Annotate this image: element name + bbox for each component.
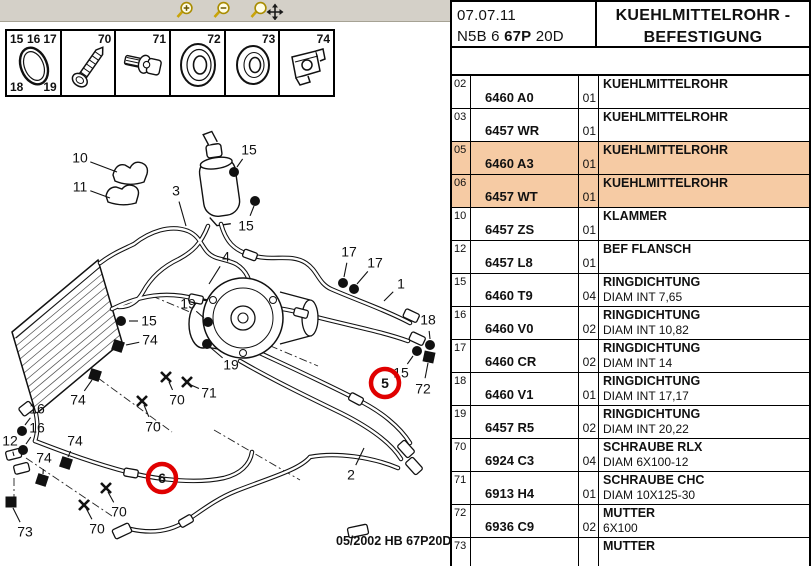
svg-text:3: 3: [172, 183, 180, 199]
svg-text:15: 15: [238, 218, 254, 234]
row-description-cell: KUEHLMITTELROHR: [599, 142, 809, 174]
screw-cross-marker: [137, 396, 147, 406]
row-qty: 01: [579, 76, 599, 108]
callout-3: 3: [172, 183, 186, 227]
screw-cross-marker: [79, 500, 89, 510]
table-row[interactable]: 17 6460 CR 02 RINGDICHTUNG DIAM INT 14: [452, 340, 809, 373]
row-part-number: 6457 R5: [471, 406, 579, 438]
row-description: RINGDICHTUNG: [603, 341, 809, 356]
callout-70: 70: [108, 492, 127, 520]
svg-text:15: 15: [141, 313, 157, 329]
row-note: DIAM INT 14: [603, 356, 809, 371]
callout-74: 74: [126, 332, 158, 348]
row-description-cell: RINGDICHTUNG DIAM INT 10,82: [599, 307, 809, 339]
page-title-line1: KUEHLMITTELROHR -: [597, 5, 809, 27]
callout-10: 10: [72, 150, 117, 173]
callout-74: 74: [70, 380, 92, 408]
row-description-cell: KUEHLMITTELROHR: [599, 109, 809, 141]
svg-text:12: 12: [2, 433, 18, 449]
row-description: BEF FLANSCH: [603, 242, 809, 257]
row-ref: 19: [452, 406, 471, 438]
svg-text:15: 15: [241, 142, 257, 158]
table-row[interactable]: 16 6460 V0 02 RINGDICHTUNG DIAM INT 10,8…: [452, 307, 809, 340]
table-spacer: [452, 48, 809, 76]
seal-dot-marker: [349, 284, 359, 294]
header-code: N5B 6 67P 20D: [457, 26, 593, 47]
svg-text:70: 70: [89, 521, 105, 537]
callout-70: 70: [144, 405, 161, 435]
row-description: RINGDICHTUNG: [603, 407, 809, 422]
row-description: RINGDICHTUNG: [603, 308, 809, 323]
svg-text:74: 74: [70, 392, 86, 408]
seal-dot-marker: [425, 340, 435, 350]
callout-15: 15: [129, 313, 157, 329]
row-description: MUTTER: [603, 539, 809, 554]
row-qty: 02: [579, 406, 599, 438]
svg-text:2: 2: [347, 467, 355, 483]
callout-1: 1: [384, 276, 405, 302]
table-row[interactable]: 19 6457 R5 02 RINGDICHTUNG DIAM INT 20,2…: [452, 406, 809, 439]
callout-2: 2: [347, 448, 364, 483]
svg-text:71: 71: [201, 385, 217, 401]
svg-text:17: 17: [367, 255, 383, 271]
svg-text:16: 16: [29, 420, 45, 436]
row-ref: 06: [452, 175, 471, 207]
row-description: RINGDICHTUNG: [603, 275, 809, 290]
row-description-cell: KUEHLMITTELROHR: [599, 76, 809, 108]
row-description-cell: RINGDICHTUNG DIAM INT 14: [599, 340, 809, 372]
screw-cross-marker: [101, 483, 111, 493]
clip-square-marker: [6, 497, 17, 508]
row-part-number: 6457 WR: [471, 109, 579, 141]
table-row[interactable]: 70 6924 C3 04 SCHRAUBE RLX DIAM 6X100-12: [452, 439, 809, 472]
highlight-circle-5: 5: [371, 369, 399, 397]
svg-text:73: 73: [17, 524, 33, 540]
row-part-number: 6924 C3: [471, 439, 579, 471]
row-qty: 01: [579, 175, 599, 207]
row-qty: 02: [579, 307, 599, 339]
row-part-number: 6460 A0: [471, 76, 579, 108]
row-description-cell: KLAMMER: [599, 208, 809, 240]
svg-text:10: 10: [72, 150, 88, 166]
seal-dot-marker: [18, 445, 28, 455]
screw-cross-marker: [182, 377, 192, 387]
row-qty: 01: [579, 109, 599, 141]
row-note: DIAM INT 10,82: [603, 323, 809, 338]
row-part-number: 6936 C9: [471, 505, 579, 537]
seal-dot-marker: [116, 316, 126, 326]
callout-18: 18: [420, 312, 436, 340]
diagram-footer: 05/2002 HB 67P20D: [336, 534, 450, 548]
row-qty: 01: [579, 208, 599, 240]
table-row[interactable]: 06 6457 WT 01 KUEHLMITTELROHR: [452, 175, 809, 208]
row-ref: 17: [452, 340, 471, 372]
row-note: 6X100: [603, 521, 809, 536]
header-reference-cell: 07.07.11 N5B 6 67P 20D: [452, 2, 597, 46]
table-row[interactable]: 18 6460 V1 01 RINGDICHTUNG DIAM INT 17,1…: [452, 373, 809, 406]
row-part-number: [471, 538, 579, 566]
row-description-cell: SCHRAUBE RLX DIAM 6X100-12: [599, 439, 809, 471]
svg-text:16: 16: [29, 401, 45, 417]
row-note: DIAM INT 20,22: [603, 422, 809, 437]
row-ref: 72: [452, 505, 471, 537]
row-note: DIAM 6X100-12: [603, 455, 809, 470]
row-description: MUTTER: [603, 506, 809, 521]
row-description: KUEHLMITTELROHR: [603, 110, 809, 125]
svg-text:70: 70: [145, 419, 161, 435]
row-qty: 04: [579, 274, 599, 306]
callout-73: 73: [13, 508, 33, 540]
row-description: KUEHLMITTELROHR: [603, 176, 809, 191]
row-ref: 02: [452, 76, 471, 108]
row-ref: 05: [452, 142, 471, 174]
row-ref: 16: [452, 307, 471, 339]
row-ref: 73: [452, 538, 471, 566]
row-description-cell: RINGDICHTUNG DIAM INT 17,17: [599, 373, 809, 405]
row-ref: 12: [452, 241, 471, 273]
row-ref: 03: [452, 109, 471, 141]
seal-dot-marker: [250, 196, 260, 206]
table-row[interactable]: 03 6457 WR 01 KUEHLMITTELROHR: [452, 109, 809, 142]
seal-dot-marker: [203, 317, 213, 327]
row-note: DIAM INT 7,65: [603, 290, 809, 305]
row-description: SCHRAUBE RLX: [603, 440, 809, 455]
seal-dot-marker: [229, 167, 239, 177]
screw-cross-marker: [161, 372, 171, 382]
row-qty: [579, 538, 599, 566]
callout-70: 70: [86, 508, 105, 537]
svg-text:19: 19: [223, 357, 239, 373]
row-part-number: 6457 WT: [471, 175, 579, 207]
svg-text:18: 18: [420, 312, 436, 328]
row-description-cell: SCHRAUBE CHC DIAM 10X125-30: [599, 472, 809, 504]
parts-table-rows: 02 6460 A0 01 KUEHLMITTELROHR 03 6457 WR…: [452, 76, 809, 566]
svg-text:70: 70: [111, 504, 127, 520]
clip-square-marker: [35, 473, 49, 487]
svg-text:74: 74: [67, 433, 83, 449]
svg-text:70: 70: [169, 392, 185, 408]
seal-dot-marker: [17, 426, 27, 436]
seal-dot-marker: [202, 339, 212, 349]
row-qty: 02: [579, 340, 599, 372]
row-qty: 01: [579, 241, 599, 273]
table-row[interactable]: 73 MUTTER: [452, 538, 809, 566]
svg-text:11: 11: [73, 179, 88, 195]
row-qty: 01: [579, 142, 599, 174]
row-part-number: 6913 H4: [471, 472, 579, 504]
callout-71: 71: [191, 385, 217, 401]
table-header: 07.07.11 N5B 6 67P 20D KUEHLMITTELROHR -…: [452, 2, 809, 48]
svg-text:72: 72: [415, 381, 431, 397]
page-title-line2: BEFESTIGUNG: [597, 27, 809, 49]
row-qty: 01: [579, 472, 599, 504]
row-ref: 18: [452, 373, 471, 405]
row-description-cell: MUTTER: [599, 538, 809, 566]
row-ref: 10: [452, 208, 471, 240]
svg-text:6: 6: [158, 470, 166, 486]
table-row[interactable]: 05 6460 A3 01 KUEHLMITTELROHR: [452, 142, 809, 175]
row-description-cell: RINGDICHTUNG DIAM INT 7,65: [599, 274, 809, 306]
row-description-cell: MUTTER 6X100: [599, 505, 809, 537]
callout-72: 72: [415, 363, 431, 397]
callout-17: 17: [341, 244, 357, 278]
svg-text:4: 4: [222, 249, 230, 265]
clip-square-marker: [422, 350, 435, 363]
row-qty: 02: [579, 505, 599, 537]
row-ref: 71: [452, 472, 471, 504]
clip-square-marker: [59, 456, 73, 470]
svg-text:19: 19: [180, 296, 196, 312]
row-part-number: 6460 CR: [471, 340, 579, 372]
callout-17: 17: [357, 255, 383, 285]
row-description-cell: RINGDICHTUNG DIAM INT 20,22: [599, 406, 809, 438]
seal-dot-marker: [412, 346, 422, 356]
callout-74: 74: [67, 433, 83, 458]
table-row[interactable]: 10 6457 ZS 01 KLAMMER: [452, 208, 809, 241]
row-ref: 70: [452, 439, 471, 471]
svg-text:5: 5: [381, 375, 389, 391]
row-ref: 15: [452, 274, 471, 306]
svg-text:17: 17: [341, 244, 357, 260]
seal-dot-marker: [338, 278, 348, 288]
row-qty: 01: [579, 373, 599, 405]
row-part-number: 6460 A3: [471, 142, 579, 174]
parts-catalog-window: 15 16 17 18 19 70: [0, 0, 811, 566]
header-date: 07.07.11: [457, 5, 593, 26]
row-part-number: 6460 V1: [471, 373, 579, 405]
table-row[interactable]: 12 6457 L8 01 BEF FLANSCH: [452, 241, 809, 274]
table-row[interactable]: 72 6936 C9 02 MUTTER 6X100: [452, 505, 809, 538]
svg-text:74: 74: [36, 450, 52, 466]
table-row[interactable]: 02 6460 A0 01 KUEHLMITTELROHR: [452, 76, 809, 109]
diagram-panel: 15 16 17 18 19 70: [0, 0, 450, 566]
row-part-number: 6460 T9: [471, 274, 579, 306]
row-description-cell: KUEHLMITTELROHR: [599, 175, 809, 207]
row-description: KLAMMER: [603, 209, 809, 224]
row-note: DIAM 10X125-30: [603, 488, 809, 503]
row-part-number: 6457 ZS: [471, 208, 579, 240]
header-title-cell: KUEHLMITTELROHR - BEFESTIGUNG: [597, 2, 809, 46]
row-description: KUEHLMITTELROHR: [603, 143, 809, 158]
row-description: SCHRAUBE CHC: [603, 473, 809, 488]
callout-11: 11: [73, 179, 110, 199]
row-description: KUEHLMITTELROHR: [603, 77, 809, 92]
diagram-static-art: [5, 129, 426, 539]
callout-15: 15: [238, 206, 254, 234]
row-description: RINGDICHTUNG: [603, 374, 809, 389]
row-part-number: 6460 V0: [471, 307, 579, 339]
svg-text:1: 1: [397, 276, 405, 292]
callout-15: 15: [237, 142, 257, 168]
table-row[interactable]: 15 6460 T9 04 RINGDICHTUNG DIAM INT 7,65: [452, 274, 809, 307]
row-part-number: 6457 L8: [471, 241, 579, 273]
svg-text:74: 74: [142, 332, 158, 348]
row-note: DIAM INT 17,17: [603, 389, 809, 404]
parts-table-panel: 07.07.11 N5B 6 67P 20D KUEHLMITTELROHR -…: [450, 0, 811, 566]
row-qty: 04: [579, 439, 599, 471]
table-row[interactable]: 71 6913 H4 01 SCHRAUBE CHC DIAM 10X125-3…: [452, 472, 809, 505]
row-description-cell: BEF FLANSCH: [599, 241, 809, 273]
diagram-svg: 1011315154191915741717118157216161274747…: [0, 0, 450, 566]
